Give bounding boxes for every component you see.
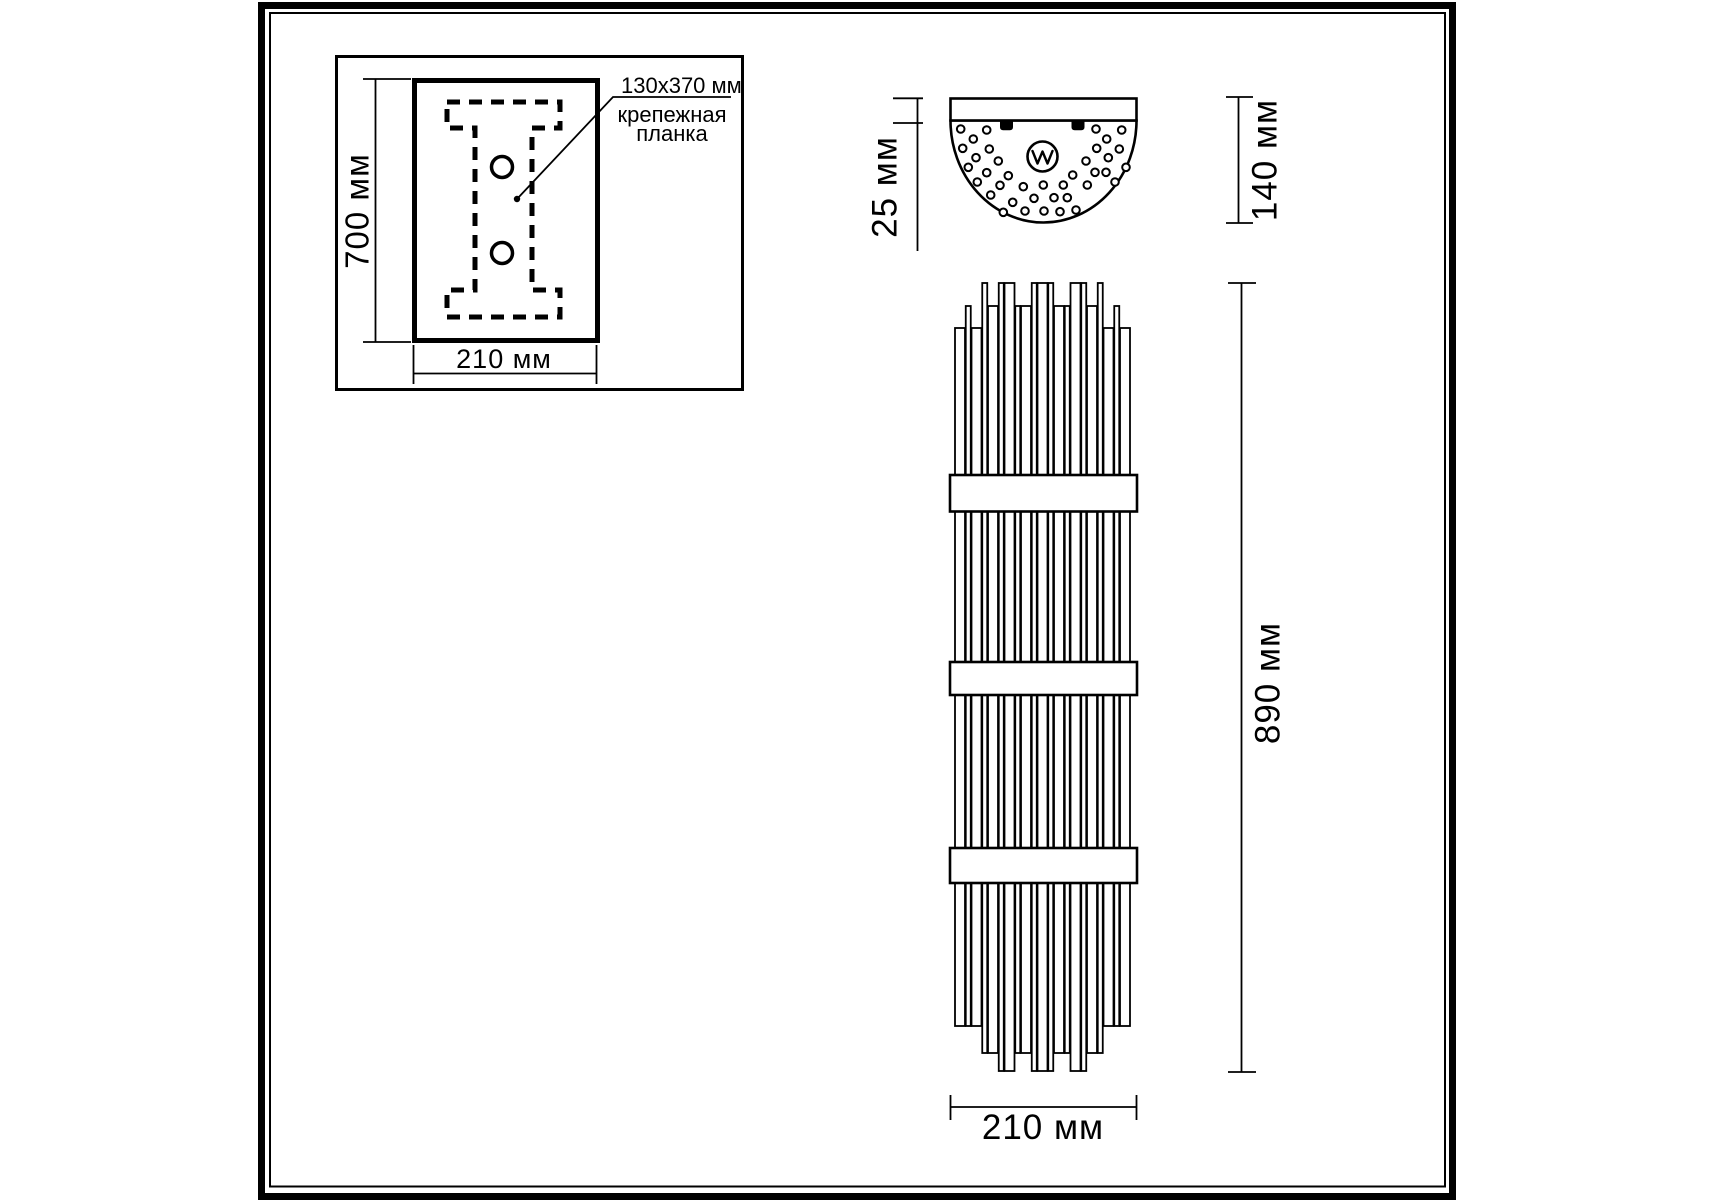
topview-height-label: 140 мм — [1245, 99, 1284, 221]
perforation-dot — [957, 125, 965, 133]
glass-rod-back — [1048, 283, 1053, 476]
glass-rod-back — [1048, 511, 1053, 664]
perforation-dot — [1084, 181, 1092, 189]
perforation-dot — [1064, 194, 1072, 202]
glass-rod-front — [1087, 694, 1097, 849]
glass-rod-front — [1087, 306, 1097, 476]
glass-rod-front — [972, 511, 982, 664]
perforation-dot — [1105, 154, 1113, 162]
perforation-dot — [1021, 207, 1029, 215]
glass-rod-back — [982, 694, 987, 849]
glass-rod-front — [988, 694, 998, 849]
glass-rod-back — [1114, 511, 1119, 664]
glass-rod-back — [1065, 694, 1070, 849]
perforation-dot — [1060, 181, 1068, 189]
perforation-dot — [1118, 126, 1126, 134]
glass-rod-back — [1065, 306, 1070, 476]
glass-rod-back — [1081, 882, 1086, 1071]
glass-rod-front — [1071, 511, 1081, 664]
glass-rod-front — [1104, 511, 1114, 664]
mounting-inset: 130x370 мм крепежная планка 700 мм 210 м… — [337, 57, 743, 390]
glass-rod-back — [1032, 511, 1037, 664]
glass-rod-back — [1098, 882, 1103, 1053]
glass-rod-back — [1032, 283, 1037, 476]
perforation-dot — [1102, 169, 1110, 177]
dimension-diagram-page: 130x370 мм крепежная планка 700 мм 210 м… — [0, 0, 1715, 1200]
glass-rod-front — [1021, 511, 1031, 664]
glass-rod-back — [982, 511, 987, 664]
perforation-dot — [1072, 206, 1080, 214]
glass-rod-back — [1081, 283, 1086, 476]
perforation-dot — [987, 191, 995, 199]
glass-rod-back — [1098, 283, 1103, 476]
topview-height-dimension: 140 мм — [1226, 97, 1284, 223]
glass-rod-back — [1065, 882, 1070, 1053]
perforation-dot — [995, 157, 1003, 165]
perforation-dot — [1092, 125, 1100, 133]
glass-rod-back — [1015, 511, 1020, 664]
glass-rod-back — [1015, 882, 1020, 1053]
glass-rod-back — [1048, 882, 1053, 1071]
glass-rod-back — [966, 306, 971, 476]
perforation-dot — [996, 182, 1004, 190]
inset-width-dimension: 210 мм — [414, 344, 597, 384]
glass-rod-front — [955, 694, 965, 849]
glass-rod-front — [1120, 694, 1130, 849]
glass-rod-back — [1098, 694, 1103, 849]
glass-rod-front — [1021, 882, 1031, 1053]
glass-rod-back — [1065, 511, 1070, 664]
glass-rod-front — [1104, 328, 1114, 476]
glass-rod-back — [1114, 306, 1119, 476]
glass-rod-front — [1087, 511, 1097, 664]
glass-rod-back — [966, 694, 971, 849]
glass-rod-front — [972, 328, 982, 476]
glass-rod-front — [1005, 511, 1015, 664]
mount-tab-left — [1000, 122, 1013, 131]
glass-rod-front — [972, 694, 982, 849]
glass-rod-back — [999, 882, 1004, 1071]
glass-rod-front — [1038, 511, 1048, 664]
perforation-dot — [959, 145, 967, 153]
glass-rod-back — [966, 882, 971, 1026]
perforation-dot — [1103, 135, 1111, 143]
inset-height-dimension: 700 мм — [339, 79, 411, 342]
glass-rod-front — [1038, 882, 1048, 1071]
metal-band-middle — [950, 662, 1137, 695]
glass-rod-back — [982, 882, 987, 1053]
perforation-dot — [965, 164, 973, 172]
glass-rod-back — [1015, 694, 1020, 849]
glass-rod-back — [1048, 694, 1053, 849]
diagram-canvas: 130x370 мм крепежная планка 700 мм 210 м… — [0, 0, 1715, 1200]
mounting-hole-bottom — [492, 243, 513, 264]
glass-rod-back — [1032, 882, 1037, 1071]
perforation-dot — [1111, 178, 1119, 186]
perforation-dot — [1082, 157, 1090, 165]
glass-rod-front — [988, 882, 998, 1053]
perforation-dot — [1009, 199, 1017, 207]
glass-rod-front — [955, 328, 965, 476]
perforation-dot — [1020, 183, 1028, 191]
glass-rod-front — [1005, 694, 1015, 849]
glass-rod-front — [955, 882, 965, 1026]
perforation-dot — [1040, 181, 1048, 189]
glass-rod-front — [1087, 882, 1097, 1053]
perforation-dot — [983, 126, 991, 134]
bracket-callout: 130x370 мм крепежная планка — [514, 73, 742, 202]
glass-rod-front — [1021, 306, 1031, 476]
metal-band-bottom — [950, 848, 1137, 883]
inset-width-label: 210 мм — [456, 344, 552, 374]
glass-rod-front — [972, 882, 982, 1026]
front-view: 890 мм 210 мм — [950, 283, 1287, 1147]
glass-rod-front — [1005, 283, 1015, 476]
glass-rod-back — [1114, 882, 1119, 1026]
perforation-dot — [1122, 164, 1130, 172]
perforation-dot — [1069, 171, 1077, 179]
mounting-bracket-dashed-outline — [447, 102, 560, 317]
glass-rod-front — [1104, 882, 1114, 1026]
top-view: 25 мм 140 мм — [865, 97, 1284, 251]
glass-rod-back — [999, 283, 1004, 476]
glass-rod-front — [988, 511, 998, 664]
glass-rod-back — [1081, 511, 1086, 664]
glass-rod-front — [1038, 283, 1048, 476]
glass-rod-front — [1071, 882, 1081, 1071]
frontview-width-dimension: 210 мм — [951, 1095, 1138, 1147]
perforation-dot — [972, 154, 980, 162]
glass-rod-back — [999, 694, 1004, 849]
perforation-dot — [1093, 145, 1101, 153]
frontview-height-dimension: 890 мм — [1228, 283, 1287, 1072]
glass-rod-back — [1114, 694, 1119, 849]
glass-rod-front — [1071, 694, 1081, 849]
glass-rod-front — [1054, 694, 1064, 849]
glass-rod-front — [1120, 328, 1130, 476]
inset-height-label: 700 мм — [339, 153, 376, 269]
frontview-width-label: 210 мм — [982, 1108, 1104, 1147]
glass-rod-front — [1021, 694, 1031, 849]
glass-rod-back — [1032, 694, 1037, 849]
backplate-strip — [951, 99, 1137, 121]
glass-rod-front — [1054, 882, 1064, 1053]
glass-rod-back — [1015, 306, 1020, 476]
perforation-dot — [1091, 169, 1099, 177]
perforation-dot — [974, 178, 982, 186]
glass-rod-front — [988, 306, 998, 476]
perforation-dot — [1040, 207, 1048, 215]
topview-depth-dimension: 25 мм — [865, 98, 923, 251]
callout-name-line2: планка — [636, 121, 708, 146]
perforation-dot — [1030, 195, 1038, 203]
frontview-height-label: 890 мм — [1248, 622, 1287, 744]
glass-rod-front — [1120, 882, 1130, 1026]
metal-band-top — [950, 475, 1137, 512]
perforation-dot — [1005, 172, 1013, 180]
mount-tab-right — [1072, 122, 1085, 131]
glass-rod-back — [982, 283, 987, 476]
glass-rod-back — [1098, 511, 1103, 664]
glass-rod-front — [955, 511, 965, 664]
glass-rod-front — [1054, 306, 1064, 476]
perforation-dot — [1050, 194, 1058, 202]
glass-rod-front — [1054, 511, 1064, 664]
mounting-hole-top — [492, 157, 513, 178]
glass-rod-front — [1005, 882, 1015, 1071]
glass-rod-front — [1104, 694, 1114, 849]
perforation-dot — [1000, 209, 1008, 217]
perforation-dot — [983, 169, 991, 177]
perforation-dot — [986, 145, 994, 153]
callout-size-label: 130x370 мм — [621, 73, 742, 98]
topview-depth-label: 25 мм — [865, 136, 904, 238]
glass-rod-front — [1038, 694, 1048, 849]
glass-rod-back — [999, 511, 1004, 664]
perforation-dot — [1116, 145, 1124, 153]
wall-plate-outline — [415, 81, 598, 341]
brand-logo-circle — [1028, 142, 1058, 172]
glass-rod-back — [1081, 694, 1086, 849]
glass-rod-front — [1071, 283, 1081, 476]
perforation-dot — [1056, 208, 1064, 216]
glass-rod-back — [966, 511, 971, 664]
perforation-dot — [970, 135, 978, 143]
glass-rod-front — [1120, 511, 1130, 664]
